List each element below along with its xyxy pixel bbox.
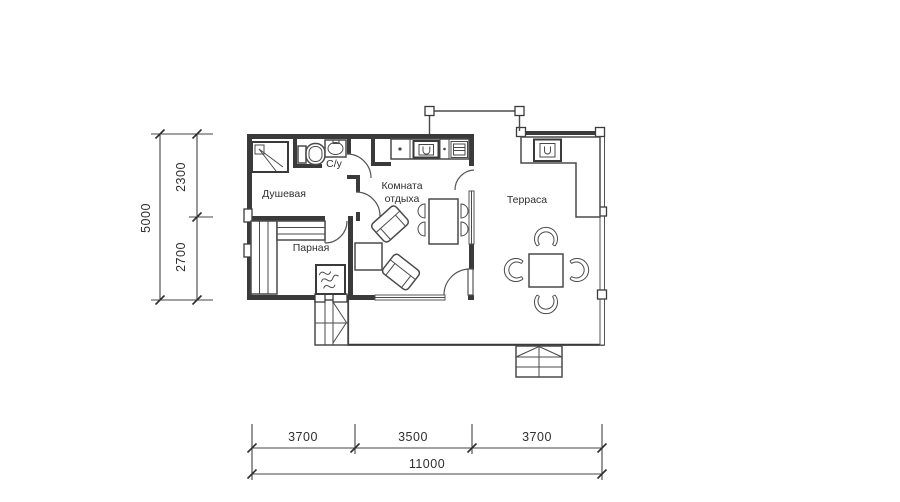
coffee-table xyxy=(355,243,382,270)
kitchen-counter xyxy=(391,139,469,159)
kitchen-sink xyxy=(414,141,439,158)
floor-plan: 5000 2300 2700 3700 3500 3700 11000 xyxy=(0,0,900,502)
dim-bottom-seg3: 3700 xyxy=(522,430,552,444)
entrance-canopy xyxy=(425,107,524,135)
label-shower: Душевая xyxy=(262,188,306,200)
terrace-chair xyxy=(570,259,589,282)
dimension-left: 5000 2300 2700 xyxy=(139,130,213,305)
terrace-post xyxy=(596,128,605,137)
terrace-post xyxy=(598,290,607,299)
window-south xyxy=(375,295,445,300)
dining-chair xyxy=(418,222,425,236)
wash-sink xyxy=(325,140,346,157)
terrace-chair xyxy=(535,295,558,314)
dining-chair xyxy=(461,204,468,218)
window-east xyxy=(469,191,474,244)
toilet xyxy=(298,144,325,165)
door-jamb xyxy=(315,294,325,302)
dining-table xyxy=(429,199,458,244)
label-steam: Парная xyxy=(293,242,330,254)
sauna-stove xyxy=(316,265,345,294)
dim-bottom-seg1: 3700 xyxy=(288,430,318,444)
canopy-post xyxy=(425,107,434,116)
steps-south xyxy=(516,346,562,377)
armchair xyxy=(381,253,421,292)
wall-vent xyxy=(244,209,252,222)
door-terrace-leaf xyxy=(468,269,473,295)
door-jamb xyxy=(333,294,347,302)
dining-chair xyxy=(461,222,468,236)
door-steam xyxy=(325,221,347,243)
door-terrace xyxy=(444,269,470,295)
label-wc: С/у xyxy=(326,158,343,170)
steps-west xyxy=(315,300,348,345)
dim-bottom-seg2: 3500 xyxy=(398,430,428,444)
dim-bottom-total: 11000 xyxy=(409,457,445,471)
sauna-bench-top xyxy=(277,221,325,240)
sauna-bench-left xyxy=(251,221,277,294)
dimension-bottom: 3700 3500 3700 11000 xyxy=(248,424,607,480)
label-terrace: Терраса xyxy=(507,194,547,206)
armchair xyxy=(370,204,410,243)
dim-left-seg1: 2300 xyxy=(174,162,188,192)
door-wc xyxy=(347,154,371,178)
dim-left-total: 5000 xyxy=(139,203,153,233)
label-lounge-1: Комната xyxy=(381,180,422,192)
dim-left-seg2: 2700 xyxy=(174,242,188,272)
door-entrance xyxy=(455,170,474,190)
canopy-post xyxy=(515,107,524,116)
terrace-table xyxy=(529,254,563,287)
shower-cabin xyxy=(252,142,288,172)
grill xyxy=(534,140,561,162)
terrace-post xyxy=(517,128,526,137)
dining-chair xyxy=(418,204,425,218)
terrace-chair xyxy=(535,227,558,246)
terrace-chair xyxy=(504,259,523,282)
label-lounge-2: отдыха xyxy=(385,193,420,205)
